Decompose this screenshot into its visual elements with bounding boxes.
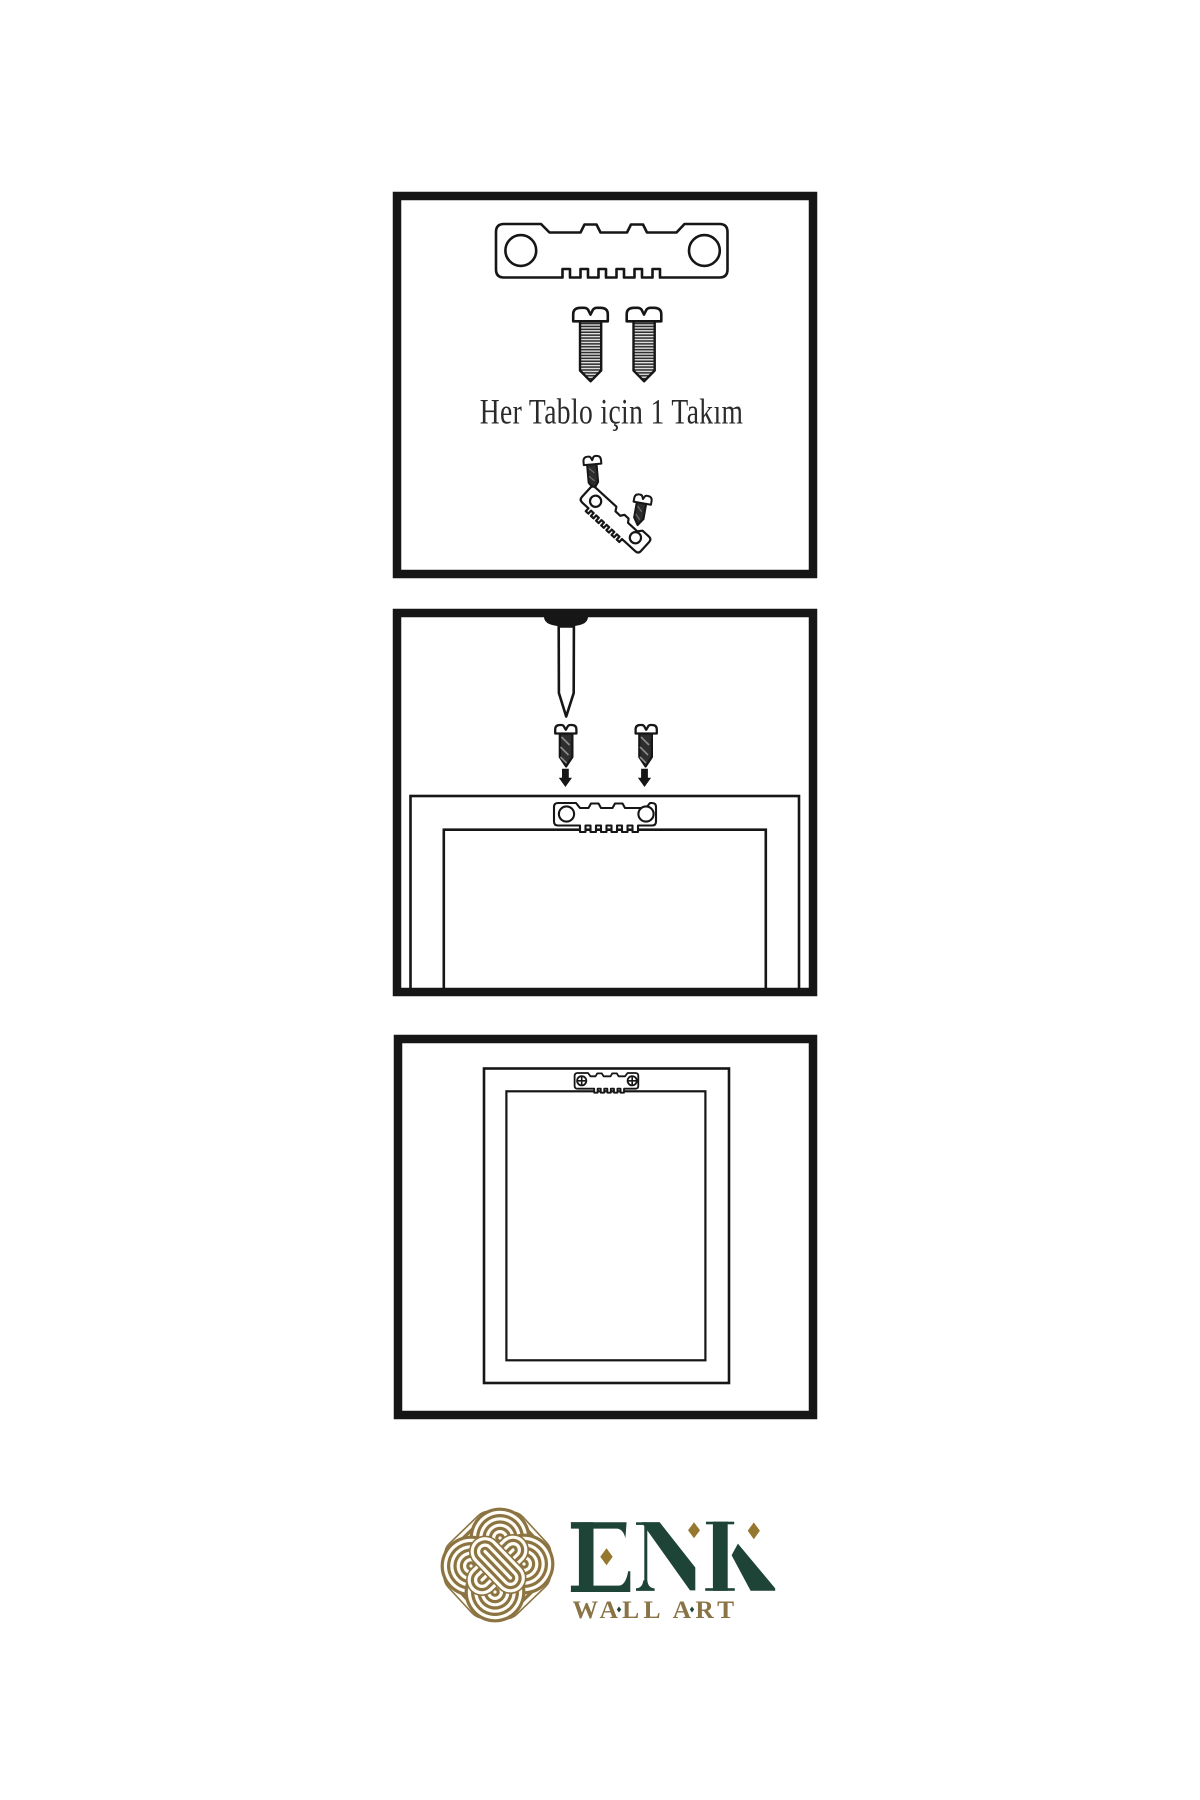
svg-text:Her Tablo için 1 Takım: Her Tablo için 1 Takım [480, 391, 744, 431]
svg-text:WALL ART: WALL ART [572, 1595, 738, 1624]
